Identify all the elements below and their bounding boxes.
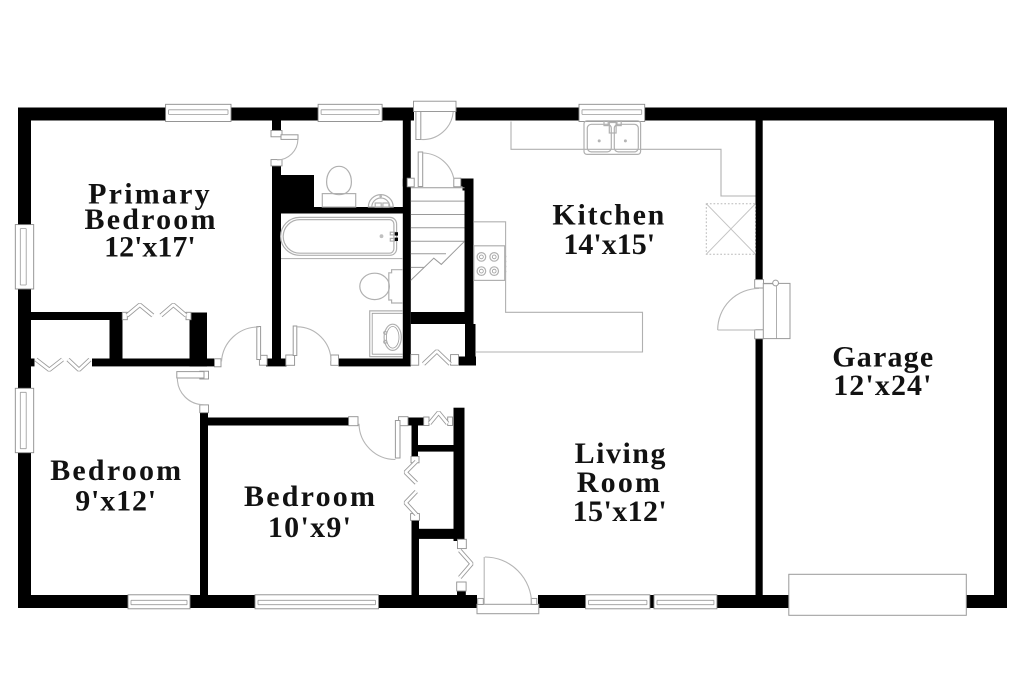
svg-text:15'x12': 15'x12' (573, 495, 667, 528)
svg-text:Kitchen: Kitchen (552, 199, 666, 232)
svg-text:Bedroom: Bedroom (244, 480, 377, 513)
svg-text:12'x24': 12'x24' (833, 369, 932, 402)
svg-text:Bedroom: Bedroom (50, 454, 183, 487)
svg-text:12'x17': 12'x17' (104, 231, 196, 264)
svg-text:14'x15': 14'x15' (563, 228, 655, 261)
svg-text:9'x12': 9'x12' (75, 485, 157, 518)
svg-text:10'x9': 10'x9' (268, 511, 352, 544)
